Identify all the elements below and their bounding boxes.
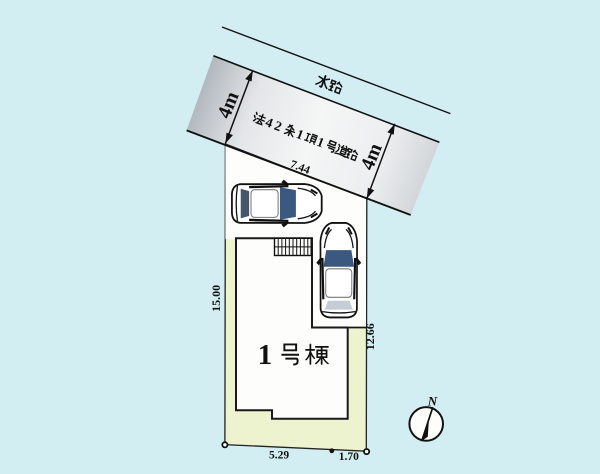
svg-text:12.66: 12.66: [363, 323, 377, 350]
svg-text:15.00: 15.00: [209, 285, 223, 312]
svg-text:1.70: 1.70: [339, 451, 359, 463]
svg-text:N: N: [427, 394, 438, 409]
svg-text:5.29: 5.29: [269, 450, 289, 462]
svg-text:1: 1: [258, 339, 273, 371]
